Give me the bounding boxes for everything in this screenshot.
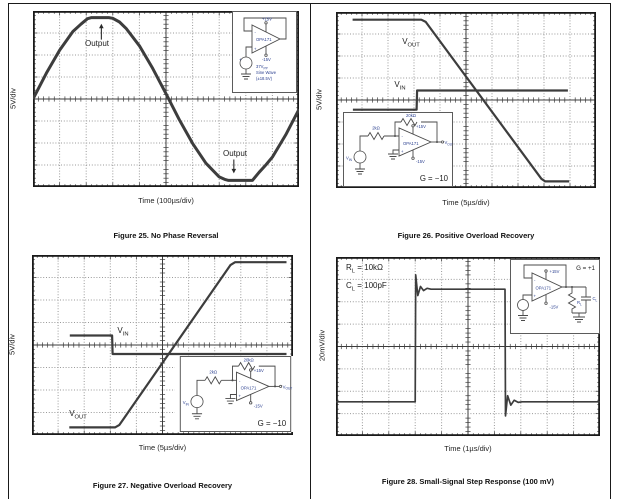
- input-resistor-label: 2kΩ: [372, 126, 380, 131]
- source-symbol: [191, 396, 203, 408]
- figure-caption: Figure 25. No Phase Reversal: [33, 231, 299, 240]
- output-label-top: Output: [85, 39, 110, 48]
- vin-trace-label: VIN: [394, 80, 405, 92]
- vplus-label: +15V: [254, 368, 264, 373]
- figure-26-panel: VOUT VIN 5V/div Time (5µs/div) Figure 26…: [310, 3, 610, 250]
- figure-25-panel: Output Output 5V/div Time (100µs/div) Fi…: [8, 3, 310, 250]
- opamp-name: OPA171: [256, 37, 272, 42]
- figure-caption: Figure 27. Negative Overload Recovery: [32, 481, 293, 490]
- y-axis-label: 5V/div: [8, 315, 17, 375]
- figure-caption: Figure 28. Small-Signal Step Response (1…: [336, 477, 600, 486]
- vplus-terminal: [265, 22, 267, 24]
- gain-label: G = +1: [576, 265, 595, 272]
- vplus-label: +15V: [262, 17, 272, 22]
- source-symbol: [518, 300, 529, 311]
- x-axis-label: Time (100µs/div): [33, 196, 299, 205]
- vplus-label: +15V: [550, 269, 560, 274]
- vout-trace-label: VOUT: [402, 37, 420, 49]
- inverting-amp-circuit-inset: VIN 2kΩ 20kΩ - + OPA171 +15V -15V VOUT G: [343, 112, 453, 187]
- vplus-terminal: [545, 270, 547, 272]
- y-axis-label: 5V/div: [9, 69, 18, 129]
- datasheet-page: Output Output 5V/div Time (100µs/div) Fi…: [0, 0, 620, 499]
- x-axis-label: Time (5µs/div): [336, 198, 596, 207]
- opamp-name: OPA171: [536, 286, 552, 291]
- node-dot: [565, 286, 567, 288]
- source-symbol: [240, 57, 252, 69]
- inverting-amp-circuit-inset: VIN 2kΩ 20kΩ - + OPA171 +15V -15V VOUT G: [175, 356, 296, 432]
- source-symbol: [354, 151, 366, 163]
- vplus-terminal: [412, 125, 414, 127]
- output-terminal: [441, 141, 443, 143]
- vminus-terminal: [412, 157, 414, 159]
- output-label-bottom: Output: [223, 149, 248, 158]
- load-capacitance-annotation: CL = 100pF: [346, 281, 387, 293]
- vout-trace-label: VOUT: [69, 409, 87, 421]
- vminus-label: -15V: [416, 159, 425, 164]
- buffer-circuit-inset: - + OPA171 +15V -15V + 37VPP Sine Wave (…: [232, 11, 297, 93]
- figure-28-panel: RL = 10kΩ CL = 100pF 20mV/div Time (1µs/…: [310, 250, 610, 499]
- node-dot: [394, 135, 396, 137]
- figure-27-panel: VIN VOUT 5V/div Time (5µs/div) Figure 27…: [8, 250, 310, 499]
- opamp-name: OPA171: [403, 141, 419, 146]
- output-terminal: [279, 385, 281, 387]
- y-axis-label: 20mV/div: [318, 316, 327, 376]
- node-dot: [436, 141, 438, 143]
- vminus-terminal: [249, 402, 251, 404]
- vminus-label: -15V: [550, 305, 559, 310]
- source-range-label: (±18.5V): [256, 76, 273, 81]
- buffer-load-circuit-inset: G = +1 - + OPA171 +15V -15V RL CL: [510, 259, 600, 334]
- gain-label: G = −10: [258, 419, 287, 428]
- vplus-terminal: [249, 369, 251, 371]
- feedback-resistor-label: 20kΩ: [244, 357, 254, 362]
- opamp-name: OPA171: [241, 385, 257, 390]
- vminus-label: -15V: [262, 57, 271, 62]
- figure-caption: Figure 26. Positive Overload Recovery: [336, 231, 596, 240]
- input-resistor-label: 2kΩ: [209, 370, 217, 375]
- x-axis-label: Time (1µs/div): [336, 444, 600, 453]
- y-axis-label: 5V/div: [315, 70, 324, 130]
- vminus-terminal: [545, 302, 547, 304]
- vin-trace-label: VIN: [117, 326, 128, 338]
- x-axis-label: Time (5µs/div): [32, 443, 293, 452]
- feedback-resistor-label: 20kΩ: [406, 113, 416, 118]
- vplus-label: +15V: [416, 124, 426, 129]
- node-dot: [274, 385, 276, 387]
- node-dot: [231, 379, 233, 381]
- vminus-label: -15V: [254, 404, 263, 409]
- gain-label: G = −10: [420, 174, 449, 183]
- source-type-label: Sine Wave: [256, 70, 277, 75]
- load-resistance-annotation: RL = 10kΩ: [346, 263, 383, 275]
